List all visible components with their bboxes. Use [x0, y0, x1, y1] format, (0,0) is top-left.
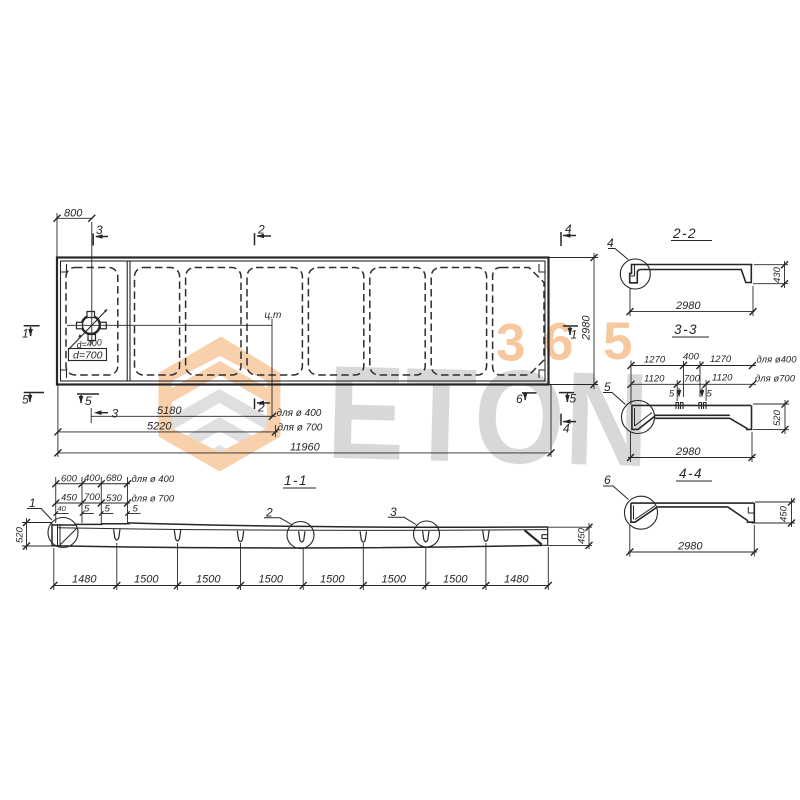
svg-text:ц.т: ц.т	[265, 310, 282, 321]
svg-text:520: 520	[15, 526, 26, 543]
svg-text:2-2: 2-2	[672, 226, 697, 241]
svg-text:1500: 1500	[259, 574, 284, 586]
svg-text:450: 450	[61, 493, 78, 504]
svg-text:1500: 1500	[134, 574, 159, 586]
svg-text:1: 1	[29, 496, 36, 510]
svg-text:1120: 1120	[712, 373, 733, 384]
svg-text:2: 2	[265, 506, 273, 520]
svg-text:4-4: 4-4	[679, 466, 703, 481]
svg-text:для ø 400: для ø 400	[132, 474, 175, 485]
svg-text:3: 3	[96, 223, 103, 237]
svg-text:для ø 700: для ø 700	[278, 423, 323, 434]
svg-text:для ø400: для ø400	[757, 355, 798, 366]
svg-text:1480: 1480	[504, 574, 529, 586]
svg-text:5180: 5180	[157, 405, 182, 417]
svg-text:800: 800	[64, 208, 83, 220]
svg-text:1500: 1500	[196, 574, 221, 586]
svg-text:3-3: 3-3	[674, 322, 698, 337]
svg-text:1120: 1120	[644, 374, 665, 385]
svg-text:1270: 1270	[644, 355, 666, 366]
svg-text:40: 40	[58, 504, 67, 513]
svg-text:2980: 2980	[675, 300, 701, 312]
svg-text:530: 530	[106, 493, 123, 504]
svg-text:6: 6	[516, 392, 523, 406]
svg-text:520: 520	[772, 409, 783, 426]
svg-text:5: 5	[669, 389, 675, 400]
svg-text:для ø700: для ø700	[755, 374, 796, 385]
svg-text:400: 400	[84, 473, 101, 484]
svg-text:2980: 2980	[675, 446, 701, 458]
svg-text:4: 4	[563, 422, 570, 436]
svg-text:5: 5	[133, 504, 139, 515]
svg-text:680: 680	[106, 473, 123, 484]
svg-text:1: 1	[22, 327, 29, 341]
svg-text:1500: 1500	[443, 574, 468, 586]
svg-text:3: 3	[496, 314, 525, 373]
svg-text:700: 700	[684, 374, 701, 385]
svg-text:для ø 400: для ø 400	[277, 408, 322, 419]
svg-text:5220: 5220	[147, 421, 172, 433]
svg-text:2980: 2980	[581, 315, 593, 341]
svg-text:1-1: 1-1	[284, 473, 308, 488]
svg-text:5: 5	[604, 380, 611, 394]
svg-text:5: 5	[105, 504, 111, 515]
svg-text:5: 5	[85, 394, 92, 408]
svg-text:d=700: d=700	[73, 349, 103, 361]
svg-text:2: 2	[257, 223, 265, 237]
svg-text:1500: 1500	[382, 574, 407, 586]
svg-text:450: 450	[779, 505, 790, 522]
svg-text:450: 450	[577, 527, 588, 544]
svg-text:1: 1	[571, 328, 578, 342]
svg-text:5: 5	[603, 312, 632, 371]
svg-text:1270: 1270	[710, 354, 732, 365]
svg-text:700: 700	[84, 492, 101, 503]
svg-text:5: 5	[22, 393, 29, 407]
svg-text:400: 400	[683, 352, 700, 363]
svg-text:1480: 1480	[72, 574, 97, 586]
svg-text:4: 4	[607, 236, 614, 250]
svg-text:6: 6	[604, 473, 611, 487]
svg-text:4: 4	[565, 222, 572, 236]
svg-text:3: 3	[112, 407, 119, 421]
svg-text:600: 600	[61, 474, 78, 485]
svg-text:430: 430	[772, 266, 783, 283]
svg-text:для ø 700: для ø 700	[132, 494, 175, 505]
svg-text:3: 3	[390, 505, 397, 519]
svg-text:5: 5	[570, 392, 577, 406]
svg-text:1500: 1500	[320, 574, 345, 586]
svg-text:2980: 2980	[677, 541, 703, 553]
svg-text:11960: 11960	[290, 442, 321, 454]
svg-text:5: 5	[84, 504, 90, 515]
svg-text:5: 5	[707, 389, 713, 400]
svg-text:2: 2	[257, 401, 265, 415]
